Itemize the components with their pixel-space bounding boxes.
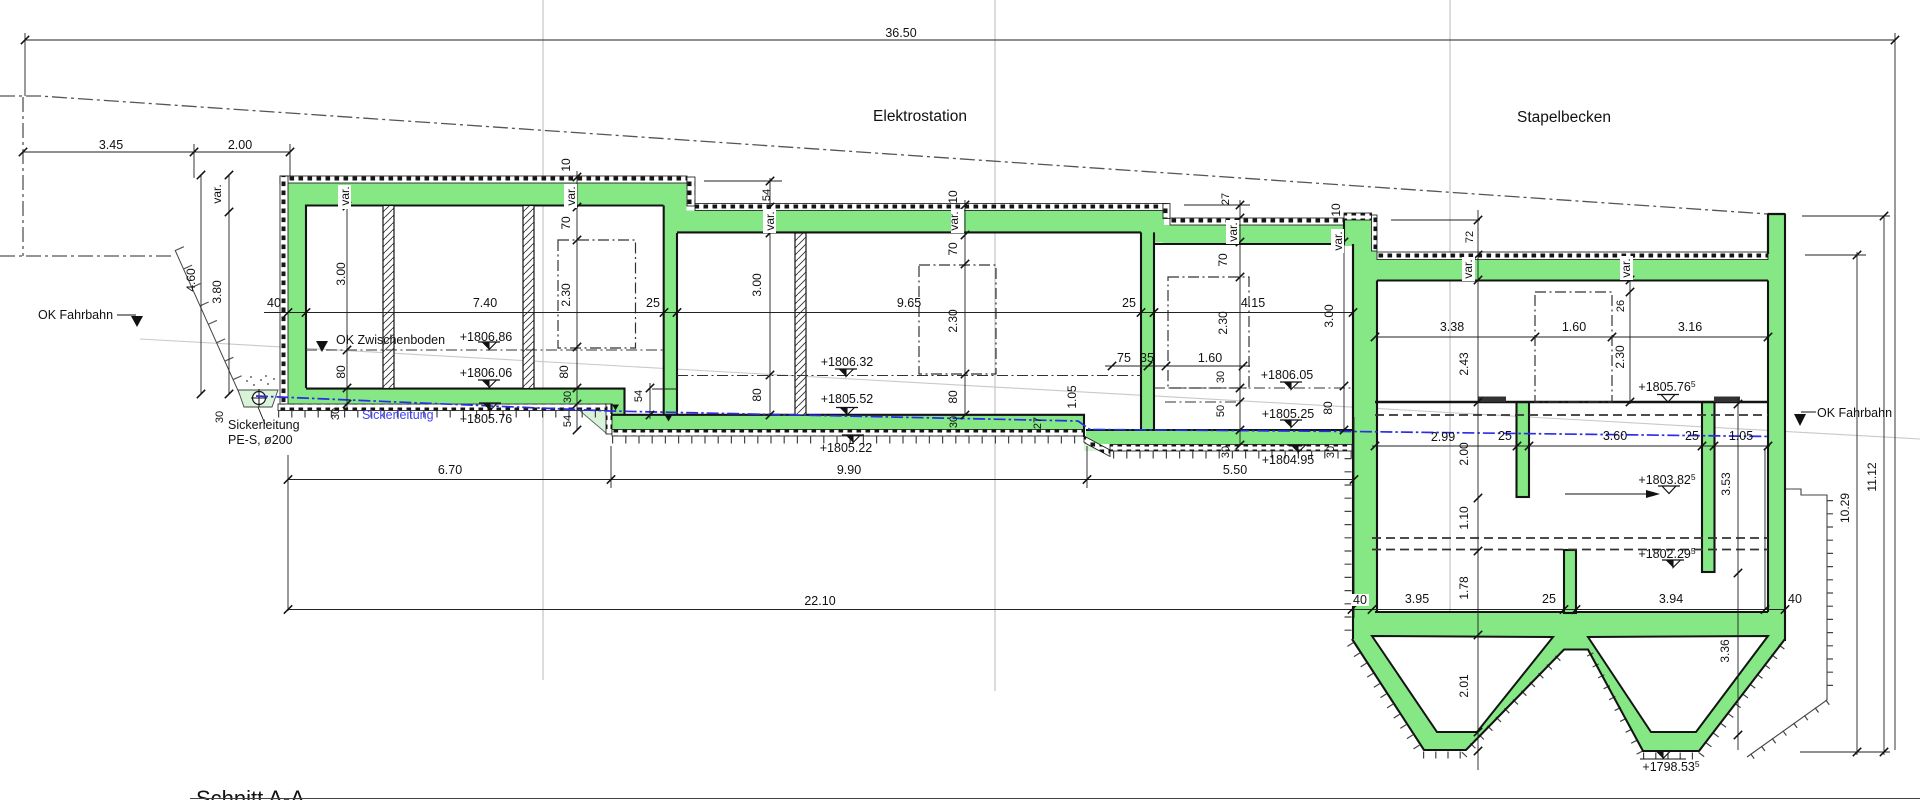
svg-text:var.: var. — [763, 211, 777, 230]
svg-text:var.: var. — [564, 186, 578, 205]
svg-text:1.60: 1.60 — [1562, 320, 1586, 334]
svg-text:25: 25 — [1685, 429, 1699, 443]
svg-text:54: 54 — [633, 390, 645, 402]
svg-text:+1806.06: +1806.06 — [460, 366, 513, 380]
svg-text:var.: var. — [947, 211, 961, 230]
svg-text:2.30: 2.30 — [946, 309, 960, 333]
svg-text:11.12: 11.12 — [1865, 462, 1879, 491]
svg-text:72: 72 — [1464, 231, 1476, 243]
svg-text:3.94: 3.94 — [1659, 592, 1683, 606]
svg-text:+1805.765: +1805.765 — [1638, 379, 1695, 394]
svg-text:3.53: 3.53 — [1719, 472, 1733, 496]
svg-text:3.95: 3.95 — [1405, 592, 1429, 606]
svg-text:Stapelbecken: Stapelbecken — [1517, 109, 1611, 126]
svg-text:30: 30 — [214, 411, 226, 423]
svg-text:6.70: 6.70 — [438, 463, 462, 477]
svg-text:+1804.95: +1804.95 — [1262, 453, 1315, 467]
svg-text:2.30: 2.30 — [559, 283, 573, 307]
svg-text:1.10: 1.10 — [1457, 506, 1471, 530]
svg-text:1.05: 1.05 — [1729, 429, 1753, 443]
svg-text:+1805.76: +1805.76 — [460, 412, 513, 426]
svg-text:3.00: 3.00 — [334, 262, 348, 286]
svg-text:80: 80 — [557, 365, 571, 379]
svg-text:var.: var. — [1461, 259, 1475, 278]
svg-text:35: 35 — [1140, 351, 1154, 365]
svg-text:30: 30 — [1325, 446, 1337, 458]
svg-text:var.: var. — [338, 186, 352, 205]
svg-text:80: 80 — [946, 390, 960, 404]
svg-text:40: 40 — [267, 296, 281, 310]
svg-text:1.60: 1.60 — [1198, 351, 1222, 365]
svg-text:PE-S, ø200: PE-S, ø200 — [228, 433, 293, 447]
svg-text:3.38: 3.38 — [1440, 320, 1464, 334]
svg-text:OK Zwischenboden: OK Zwischenboden — [336, 333, 445, 347]
svg-text:2.01: 2.01 — [1457, 674, 1471, 698]
svg-text:+1798.535: +1798.535 — [1642, 759, 1699, 774]
svg-text:+1802.295: +1802.295 — [1638, 546, 1695, 561]
svg-text:54: 54 — [761, 189, 773, 201]
svg-text:2.00: 2.00 — [228, 138, 252, 152]
svg-text:80: 80 — [750, 388, 764, 402]
svg-text:+1803.825: +1803.825 — [1638, 472, 1695, 487]
svg-text:26: 26 — [1615, 300, 1627, 312]
svg-text:25: 25 — [646, 296, 660, 310]
svg-text:10.29: 10.29 — [1838, 493, 1852, 523]
svg-text:30: 30 — [948, 416, 960, 428]
svg-text:9.90: 9.90 — [837, 463, 861, 477]
svg-text:var.: var. — [1331, 231, 1345, 250]
svg-text:30: 30 — [1215, 371, 1227, 383]
svg-text:var.: var. — [1226, 222, 1240, 241]
svg-text:4.15: 4.15 — [1241, 296, 1265, 310]
svg-text:30: 30 — [1220, 446, 1232, 458]
svg-text:30: 30 — [562, 391, 574, 403]
svg-text:var.: var. — [210, 184, 224, 203]
svg-text:2.43: 2.43 — [1457, 352, 1471, 376]
svg-text:OK Fahrbahn: OK Fahrbahn — [1817, 406, 1892, 420]
svg-text:27: 27 — [1220, 193, 1232, 205]
svg-text:27: 27 — [1032, 417, 1044, 429]
svg-text:3.80: 3.80 — [210, 280, 224, 304]
svg-text:40: 40 — [1788, 592, 1802, 606]
svg-text:25: 25 — [1542, 592, 1556, 606]
svg-text:25: 25 — [1498, 429, 1512, 443]
svg-text:70: 70 — [946, 242, 960, 256]
svg-text:3.00: 3.00 — [750, 273, 764, 297]
svg-text:1.05: 1.05 — [1065, 385, 1079, 409]
svg-text:80: 80 — [334, 365, 348, 379]
svg-text:+1805.22: +1805.22 — [820, 441, 873, 455]
svg-text:10: 10 — [946, 190, 960, 204]
svg-text:22.10: 22.10 — [804, 594, 835, 608]
svg-text:var.: var. — [1619, 258, 1633, 277]
svg-text:+1805.52: +1805.52 — [821, 392, 874, 406]
svg-text:3.36: 3.36 — [1718, 639, 1732, 663]
svg-text:2.30: 2.30 — [1216, 311, 1230, 335]
svg-text:OK Fahrbahn: OK Fahrbahn — [38, 308, 113, 322]
svg-text:25: 25 — [1122, 296, 1136, 310]
svg-text:+1806.32: +1806.32 — [821, 355, 874, 369]
svg-text:54: 54 — [562, 415, 574, 427]
svg-text:+1805.25: +1805.25 — [1262, 407, 1315, 421]
svg-text:2.30: 2.30 — [1613, 345, 1627, 369]
svg-text:80: 80 — [1321, 401, 1335, 415]
svg-text:5.50: 5.50 — [1223, 463, 1247, 477]
svg-text:4.60: 4.60 — [184, 268, 198, 292]
svg-text:70: 70 — [1216, 253, 1230, 267]
svg-text:3.00: 3.00 — [1322, 304, 1336, 328]
svg-text:2.99: 2.99 — [1431, 430, 1455, 444]
svg-text:1.78: 1.78 — [1457, 576, 1471, 600]
svg-text:3.16: 3.16 — [1678, 320, 1702, 334]
svg-text:40: 40 — [1353, 593, 1367, 607]
svg-text:9.65: 9.65 — [897, 296, 921, 310]
svg-text:10: 10 — [1329, 203, 1343, 217]
svg-text:2.00: 2.00 — [1457, 442, 1471, 466]
svg-text:50: 50 — [1215, 405, 1227, 417]
svg-text:75: 75 — [1117, 351, 1131, 365]
svg-text:3.45: 3.45 — [99, 138, 123, 152]
svg-text:36.50: 36.50 — [885, 26, 916, 40]
svg-text:7.40: 7.40 — [473, 296, 497, 310]
svg-text:Schnitt A-A: Schnitt A-A — [196, 786, 305, 800]
svg-text:3.60: 3.60 — [1603, 429, 1627, 443]
svg-text:70: 70 — [559, 216, 573, 230]
svg-text:Sickerleitung: Sickerleitung — [362, 408, 434, 422]
svg-text:+1806.05: +1806.05 — [1261, 368, 1314, 382]
svg-text:30: 30 — [330, 408, 342, 420]
svg-text:10: 10 — [559, 158, 573, 172]
svg-text:Elektrostation: Elektrostation — [873, 108, 967, 125]
